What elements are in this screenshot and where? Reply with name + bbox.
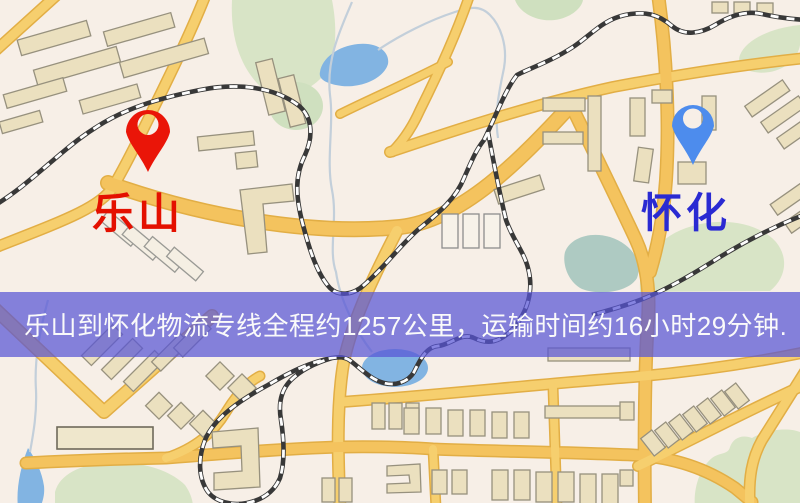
route-info-text: 乐山到怀化物流专线全程约1257公里，运输时间约16小时29分钟. (0, 306, 787, 343)
basemap (0, 0, 800, 503)
origin-label: 乐山 (92, 180, 184, 241)
destination-label: 怀化 (641, 179, 731, 239)
route-info-banner: 乐山到怀化物流专线全程约1257公里，运输时间约16小时29分钟. (0, 292, 800, 357)
destination-pin-icon[interactable] (670, 94, 716, 166)
map-canvas[interactable]: 乐山 怀化 乐山到怀化物流专线全程约1257公里，运输时间约16小时29分钟. (0, 0, 800, 503)
origin-pin-icon[interactable] (124, 99, 172, 173)
